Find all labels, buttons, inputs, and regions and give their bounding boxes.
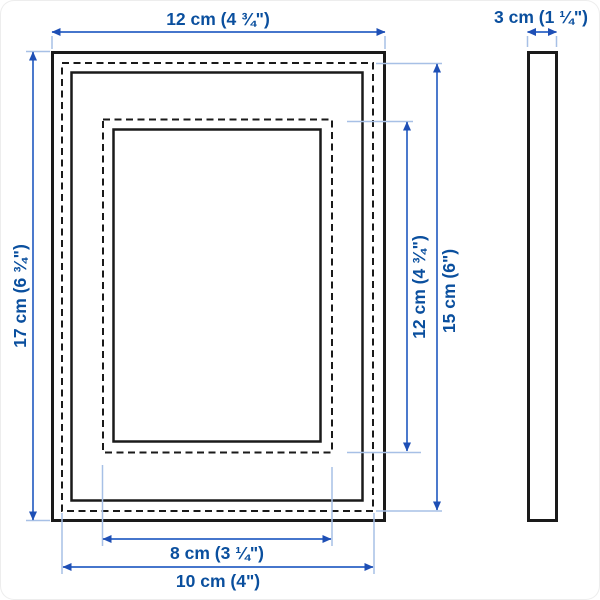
extension-lines xyxy=(26,36,557,574)
dimension-diagram-svg: 12 cm (4 ¾") 3 cm (1 ¼") 17 cm (6 ¾") 12… xyxy=(0,0,600,600)
dim-label-opening-width: 8 cm (3 ¼") xyxy=(170,543,264,563)
dimension-labels: 12 cm (4 ¾") 3 cm (1 ¼") 17 cm (6 ¾") 12… xyxy=(10,7,588,591)
picture-window-rect xyxy=(114,130,321,442)
front-view xyxy=(53,53,385,521)
dim-label-outer-height: 17 cm (6 ¾") xyxy=(10,244,30,348)
side-view xyxy=(529,53,557,521)
dimension-lines xyxy=(33,32,557,567)
dim-label-depth: 3 cm (1 ¼") xyxy=(494,7,588,27)
frame-dimension-diagram: 12 cm (4 ¾") 3 cm (1 ¼") 17 cm (6 ¾") 12… xyxy=(0,0,600,600)
dim-label-outer-width: 12 cm (4 ¾") xyxy=(166,9,270,29)
side-profile-rect xyxy=(529,53,557,521)
mat-opening-dashed-rect xyxy=(103,120,332,453)
dim-label-opening-height: 12 cm (4 ¾") xyxy=(409,235,429,339)
frame-inner-edge-rect xyxy=(72,73,363,501)
dim-label-picture-height: 15 cm (6") xyxy=(439,249,459,333)
dim-label-picture-width: 10 cm (4") xyxy=(176,571,260,591)
